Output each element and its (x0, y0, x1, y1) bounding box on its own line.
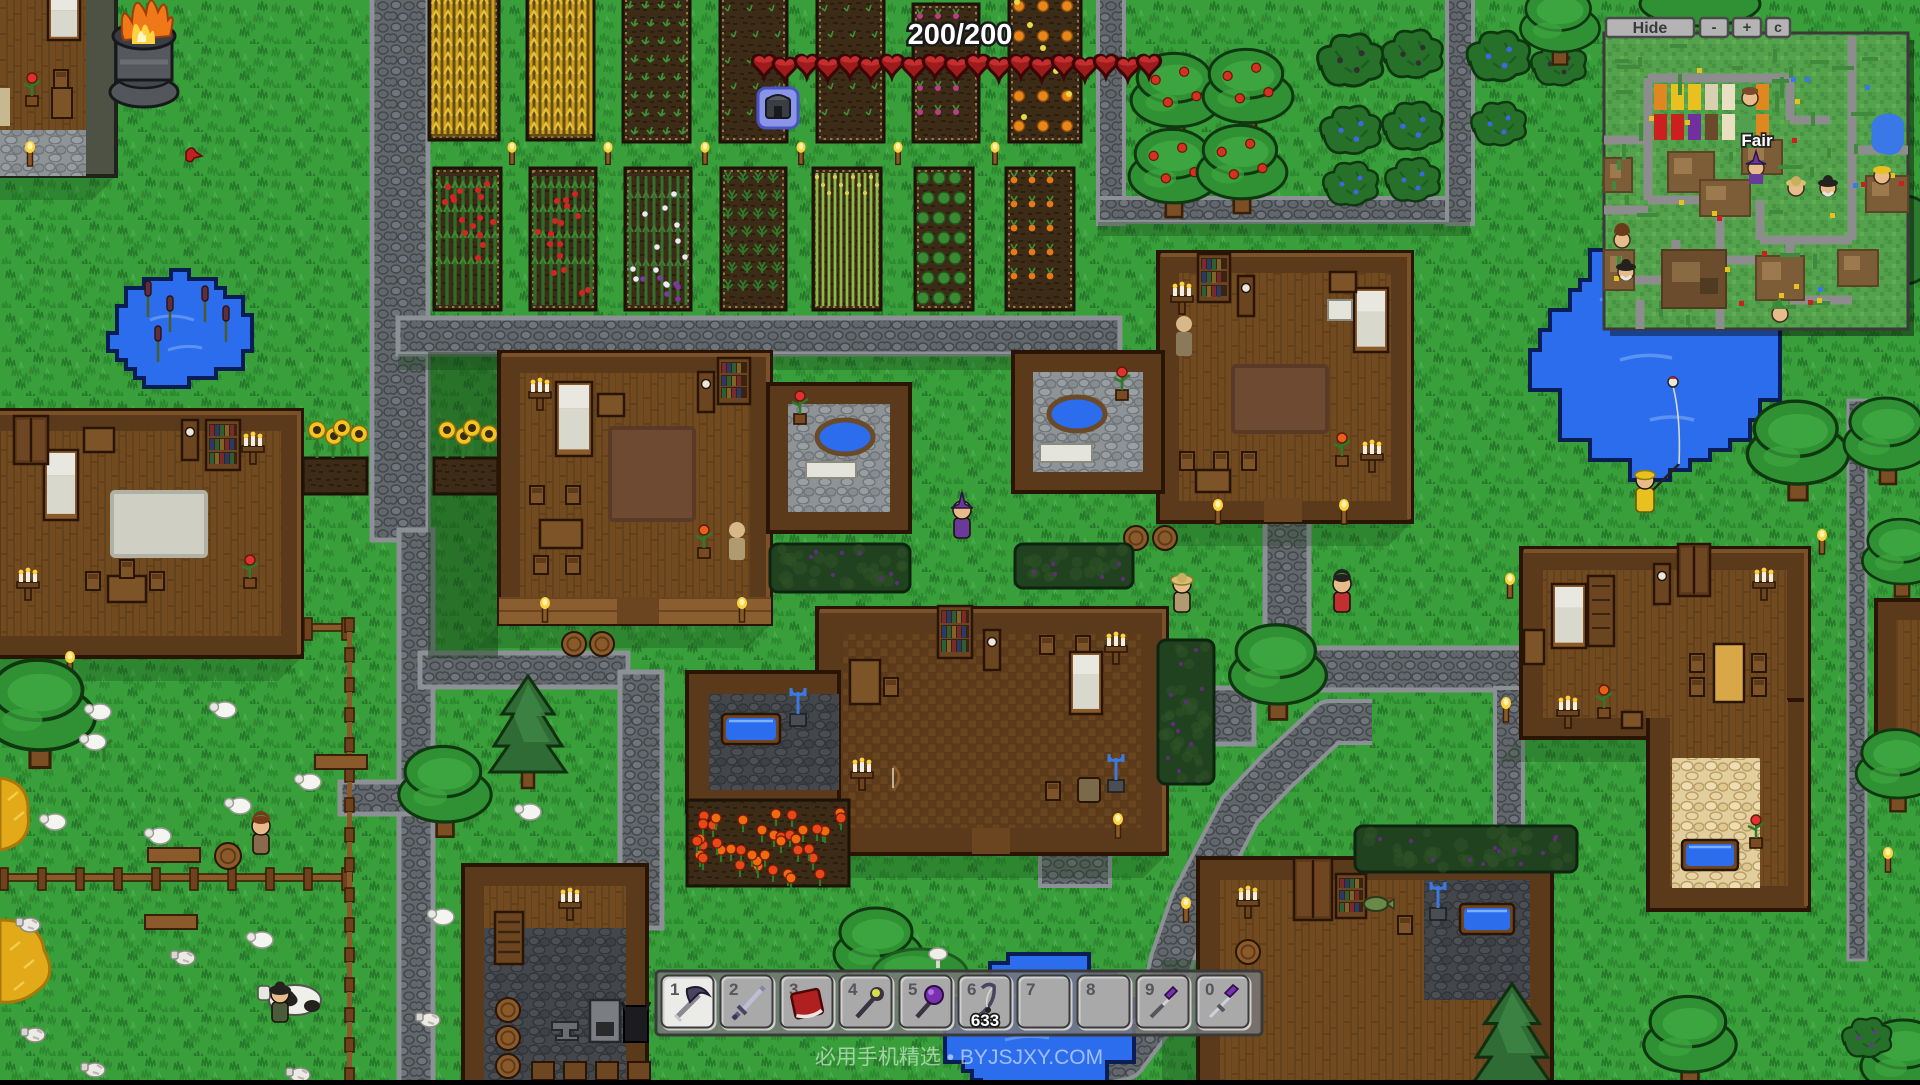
svg-text:200/200: 200/200 (908, 19, 1013, 51)
svg-text:2: 2 (729, 980, 738, 999)
svg-text:Hide: Hide (1633, 20, 1668, 37)
svg-text:9: 9 (1145, 980, 1154, 999)
svg-text:Fair: Fair (1741, 131, 1773, 150)
svg-text:必用手机精选 • BYJSJXY.COM: 必用手机精选 • BYJSJXY.COM (815, 1046, 1103, 1069)
svg-text:8: 8 (1086, 980, 1095, 999)
svg-text:6: 6 (967, 980, 976, 999)
svg-text:4: 4 (848, 980, 858, 999)
svg-text:1: 1 (670, 980, 679, 999)
svg-text:+: + (1743, 19, 1752, 36)
svg-text:c: c (1774, 19, 1782, 35)
svg-text:633: 633 (971, 1011, 999, 1030)
svg-text:0: 0 (1205, 980, 1214, 999)
svg-text:-: - (1712, 19, 1717, 36)
svg-text:7: 7 (1026, 980, 1035, 999)
svg-text:5: 5 (908, 980, 917, 999)
